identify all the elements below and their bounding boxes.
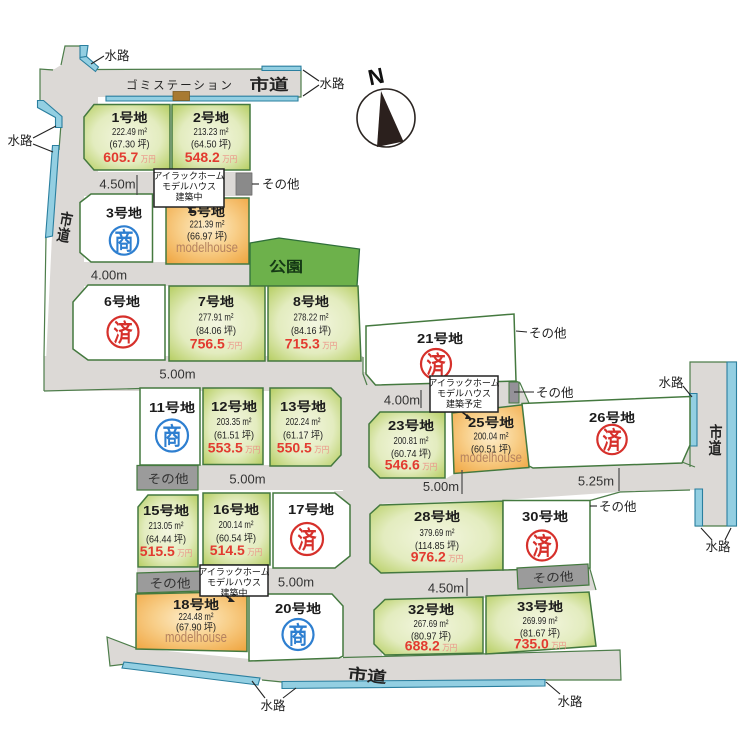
svg-text:道: 道 <box>709 439 722 458</box>
svg-text:済: 済 <box>603 427 623 455</box>
svg-text:モデルハウス: モデルハウス <box>437 388 491 399</box>
svg-text:済: 済 <box>114 319 134 347</box>
svg-text:5.00m: 5.00m <box>278 575 314 590</box>
svg-text:5.00m: 5.00m <box>423 479 459 494</box>
svg-text:ゴミステーション: ゴミステーション <box>126 78 234 92</box>
svg-text:4.50m: 4.50m <box>428 581 464 596</box>
svg-text:17号地: 17号地 <box>288 502 335 517</box>
svg-text:213.05 m²: 213.05 m² <box>149 520 184 532</box>
svg-text:1号地: 1号地 <box>112 110 149 125</box>
svg-text:277.91 m²: 277.91 m² <box>199 312 234 324</box>
svg-text:商: 商 <box>163 423 182 451</box>
svg-text:水路: 水路 <box>319 76 345 91</box>
svg-text:4.00m: 4.00m <box>384 393 420 408</box>
svg-text:建築予定: 建築予定 <box>446 398 482 409</box>
svg-text:269.99 m²: 269.99 m² <box>523 615 558 627</box>
svg-text:アイラックホーム: アイラックホーム <box>153 171 224 181</box>
svg-text:市道: 市道 <box>250 75 290 94</box>
svg-text:水路: 水路 <box>658 375 684 390</box>
svg-text:modelhouse: modelhouse <box>165 630 227 646</box>
svg-text:18号地: 18号地 <box>173 597 220 612</box>
svg-text:商: 商 <box>115 228 134 256</box>
svg-text:202.24 m²: 202.24 m² <box>286 416 321 428</box>
svg-text:12号地: 12号地 <box>211 399 258 414</box>
svg-text:商: 商 <box>289 622 308 650</box>
svg-text:その他: その他 <box>599 500 637 514</box>
svg-text:28号地: 28号地 <box>414 509 461 524</box>
svg-text:20号地: 20号地 <box>275 601 322 616</box>
svg-text:modelhouse: modelhouse <box>460 450 522 465</box>
svg-text:アイラックホーム: アイラックホーム <box>198 567 269 577</box>
svg-text:済: 済 <box>427 351 447 379</box>
svg-text:公園: 公園 <box>269 259 303 276</box>
svg-text:203.35 m²: 203.35 m² <box>217 416 252 428</box>
svg-text:11号地: 11号地 <box>149 400 196 415</box>
svg-text:アイラックホーム: アイラックホーム <box>428 378 499 388</box>
svg-text:その他: その他 <box>148 472 189 486</box>
svg-text:3号地: 3号地 <box>106 206 143 221</box>
svg-text:221.39 m²: 221.39 m² <box>190 219 225 231</box>
svg-text:4.50m: 4.50m <box>99 177 135 192</box>
svg-text:済: 済 <box>533 533 553 561</box>
svg-text:200.14 m²: 200.14 m² <box>219 519 254 531</box>
svg-text:267.69 m²: 267.69 m² <box>414 618 449 630</box>
svg-text:30号地: 30号地 <box>522 509 569 524</box>
svg-text:建築中: 建築中 <box>220 587 247 598</box>
svg-text:13号地: 13号地 <box>280 399 327 414</box>
svg-text:7号地: 7号地 <box>198 294 235 309</box>
svg-text:5.25m: 5.25m <box>578 474 614 489</box>
svg-text:水路: 水路 <box>557 694 583 709</box>
svg-text:市: 市 <box>710 423 723 442</box>
svg-text:建築中: 建築中 <box>175 191 202 202</box>
svg-text:モデルハウス: モデルハウス <box>162 181 216 192</box>
svg-text:32号地: 32号地 <box>408 602 455 617</box>
svg-text:16号地: 16号地 <box>213 502 260 517</box>
svg-text:21号地: 21号地 <box>417 331 464 346</box>
svg-text:278.22 m²: 278.22 m² <box>294 312 329 324</box>
svg-text:222.49 m²: 222.49 m² <box>112 126 147 138</box>
svg-text:379.69 m²: 379.69 m² <box>420 527 455 539</box>
svg-text:モデルハウス: モデルハウス <box>207 577 261 588</box>
svg-text:5.00m: 5.00m <box>159 367 195 382</box>
svg-text:水路: 水路 <box>705 539 731 554</box>
svg-text:その他: その他 <box>262 178 300 192</box>
svg-text:水路: 水路 <box>260 698 286 713</box>
svg-text:213.23 m²: 213.23 m² <box>194 126 229 138</box>
svg-text:その他: その他 <box>532 569 574 585</box>
svg-text:26号地: 26号地 <box>589 410 636 425</box>
svg-text:その他: その他 <box>150 577 191 591</box>
svg-text:2号地: 2号地 <box>193 110 230 125</box>
svg-text:200.04 m²: 200.04 m² <box>474 431 509 443</box>
svg-text:6号地: 6号地 <box>104 294 141 309</box>
svg-text:25号地: 25号地 <box>468 415 515 430</box>
svg-text:23号地: 23号地 <box>388 418 435 433</box>
svg-text:水路: 水路 <box>104 48 130 63</box>
svg-text:5.00m: 5.00m <box>229 472 265 487</box>
svg-text:済: 済 <box>298 526 318 554</box>
svg-text:水路: 水路 <box>7 133 33 148</box>
svg-text:200.81 m²: 200.81 m² <box>394 435 429 447</box>
svg-text:15号地: 15号地 <box>143 503 190 518</box>
svg-text:33号地: 33号地 <box>517 599 564 614</box>
svg-text:4.00m: 4.00m <box>91 268 127 283</box>
svg-text:その他: その他 <box>536 386 574 400</box>
svg-text:8号地: 8号地 <box>293 294 330 309</box>
svg-text:modelhouse: modelhouse <box>176 240 238 255</box>
svg-text:その他: その他 <box>529 327 567 341</box>
